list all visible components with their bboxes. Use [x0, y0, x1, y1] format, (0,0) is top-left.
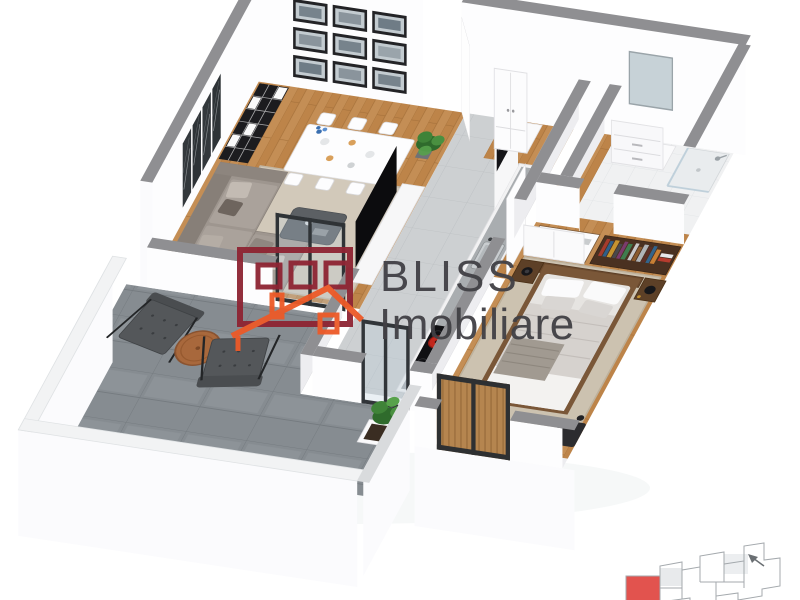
kitchen-south-wall — [312, 356, 361, 403]
bedroom-south-wall — [510, 420, 562, 468]
bathroom-mirror — [629, 52, 672, 111]
bath-south-wall — [536, 182, 579, 229]
bedroom-south-wall — [415, 406, 437, 449]
watermark-line1: BLISS — [380, 252, 520, 301]
pillow — [540, 278, 585, 297]
render-canvas: BLISS Imobiliare — [0, 0, 800, 600]
keyplan-highlighted-unit — [626, 576, 660, 600]
bedroom-window — [437, 373, 510, 460]
keyplan — [626, 543, 780, 600]
apartment-3d-floorplan: BLISS Imobiliare — [0, 0, 800, 600]
north-arrow-icon — [748, 554, 764, 566]
watermark-line2: Imobiliare — [379, 300, 575, 349]
